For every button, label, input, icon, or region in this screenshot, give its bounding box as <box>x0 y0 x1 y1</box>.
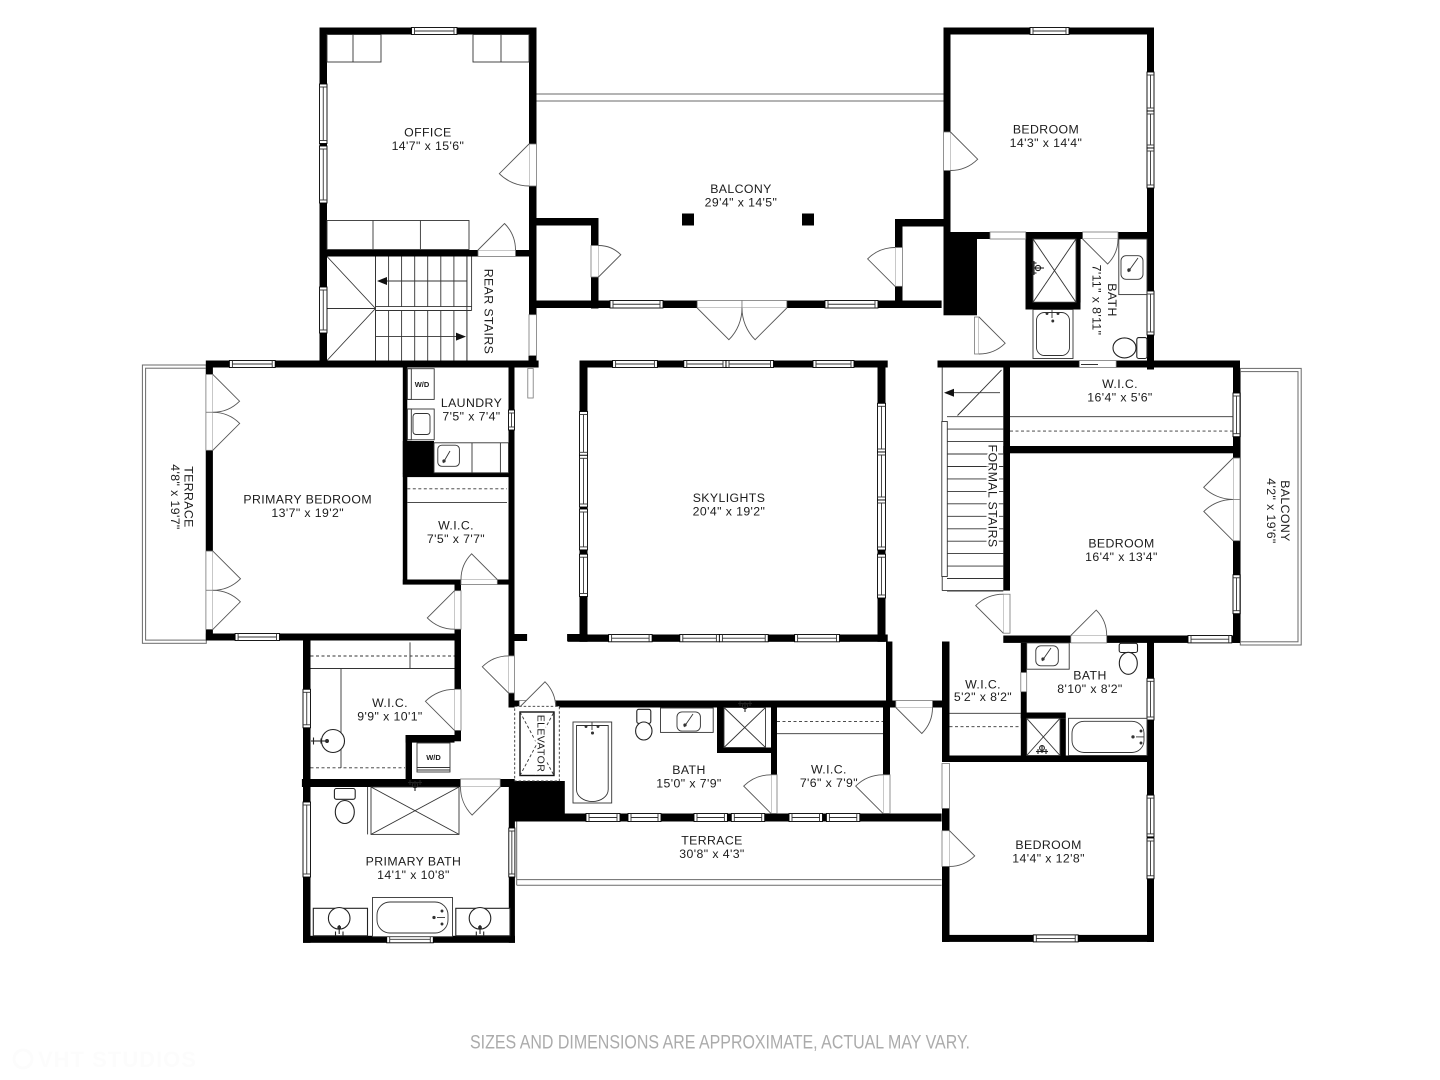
svg-text:BATH: BATH <box>672 763 705 777</box>
svg-text:SIZES AND DIMENSIONS ARE APPRO: SIZES AND DIMENSIONS ARE APPROXIMATE, AC… <box>470 1033 970 1054</box>
svg-text:5'2" x 8'2": 5'2" x 8'2" <box>954 690 1012 704</box>
svg-text:16'4" x 5'6": 16'4" x 5'6" <box>1087 391 1152 405</box>
svg-text:ELEVATOR: ELEVATOR <box>535 715 547 772</box>
svg-text:9'9" x 10'1": 9'9" x 10'1" <box>357 710 422 724</box>
svg-text:29'4" x 14'5": 29'4" x 14'5" <box>705 196 778 210</box>
svg-text:W.I.C.: W.I.C. <box>372 696 408 710</box>
svg-text:7'11" x 8'11": 7'11" x 8'11" <box>1090 265 1104 336</box>
svg-text:BALCONY: BALCONY <box>1278 480 1292 542</box>
svg-text:PRIMARY BATH: PRIMARY BATH <box>366 855 462 869</box>
svg-text:15'0" x 7'9": 15'0" x 7'9" <box>656 777 721 791</box>
svg-text:4'2" x 19'6": 4'2" x 19'6" <box>1264 478 1278 543</box>
svg-text:13'7" x 19'2": 13'7" x 19'2" <box>271 506 344 520</box>
svg-text:BEDROOM: BEDROOM <box>1015 838 1081 852</box>
svg-text:W/D: W/D <box>426 753 441 762</box>
svg-text:8'10" x 8'2": 8'10" x 8'2" <box>1057 682 1122 696</box>
svg-text:BATH: BATH <box>1073 669 1106 683</box>
svg-text:14'7" x 15'6": 14'7" x 15'6" <box>392 139 465 153</box>
svg-text:BALCONY: BALCONY <box>710 182 772 196</box>
svg-text:14'4" x 12'8": 14'4" x 12'8" <box>1012 852 1085 866</box>
svg-text:30'8" x 4'3": 30'8" x 4'3" <box>679 847 744 861</box>
svg-text:W.I.C.: W.I.C. <box>438 519 474 533</box>
svg-text:BEDROOM: BEDROOM <box>1013 123 1079 137</box>
svg-text:16'4" x 13'4": 16'4" x 13'4" <box>1085 550 1158 564</box>
svg-text:VHT STUDIOS: VHT STUDIOS <box>38 1047 197 1072</box>
svg-text:20'4" x 19'2": 20'4" x 19'2" <box>693 505 766 519</box>
svg-text:SKYLIGHTS: SKYLIGHTS <box>693 491 766 505</box>
svg-text:TERRACE: TERRACE <box>681 834 743 848</box>
svg-text:7'5" x 7'7": 7'5" x 7'7" <box>427 532 485 546</box>
svg-text:14'1" x 10'8": 14'1" x 10'8" <box>377 868 450 882</box>
svg-text:LAUNDRY: LAUNDRY <box>441 396 502 410</box>
svg-text:FORMAL STAIRS: FORMAL STAIRS <box>986 445 1000 548</box>
svg-text:W.I.C.: W.I.C. <box>1102 377 1138 391</box>
svg-text:4'8" x 19'7": 4'8" x 19'7" <box>168 464 182 529</box>
svg-text:W/D: W/D <box>415 380 430 389</box>
svg-text:TERRACE: TERRACE <box>182 466 196 528</box>
svg-text:W.I.C.: W.I.C. <box>811 763 847 777</box>
svg-text:7'5" x 7'4": 7'5" x 7'4" <box>442 410 500 424</box>
svg-text:PRIMARY BEDROOM: PRIMARY BEDROOM <box>243 493 372 507</box>
svg-text:OFFICE: OFFICE <box>404 125 452 139</box>
svg-text:14'3" x 14'4": 14'3" x 14'4" <box>1010 136 1083 150</box>
svg-text:7'6" x 7'9": 7'6" x 7'9" <box>800 776 858 790</box>
svg-text:REAR STAIRS: REAR STAIRS <box>482 269 496 354</box>
svg-text:BEDROOM: BEDROOM <box>1088 537 1154 551</box>
svg-text:BATH: BATH <box>1105 283 1119 316</box>
